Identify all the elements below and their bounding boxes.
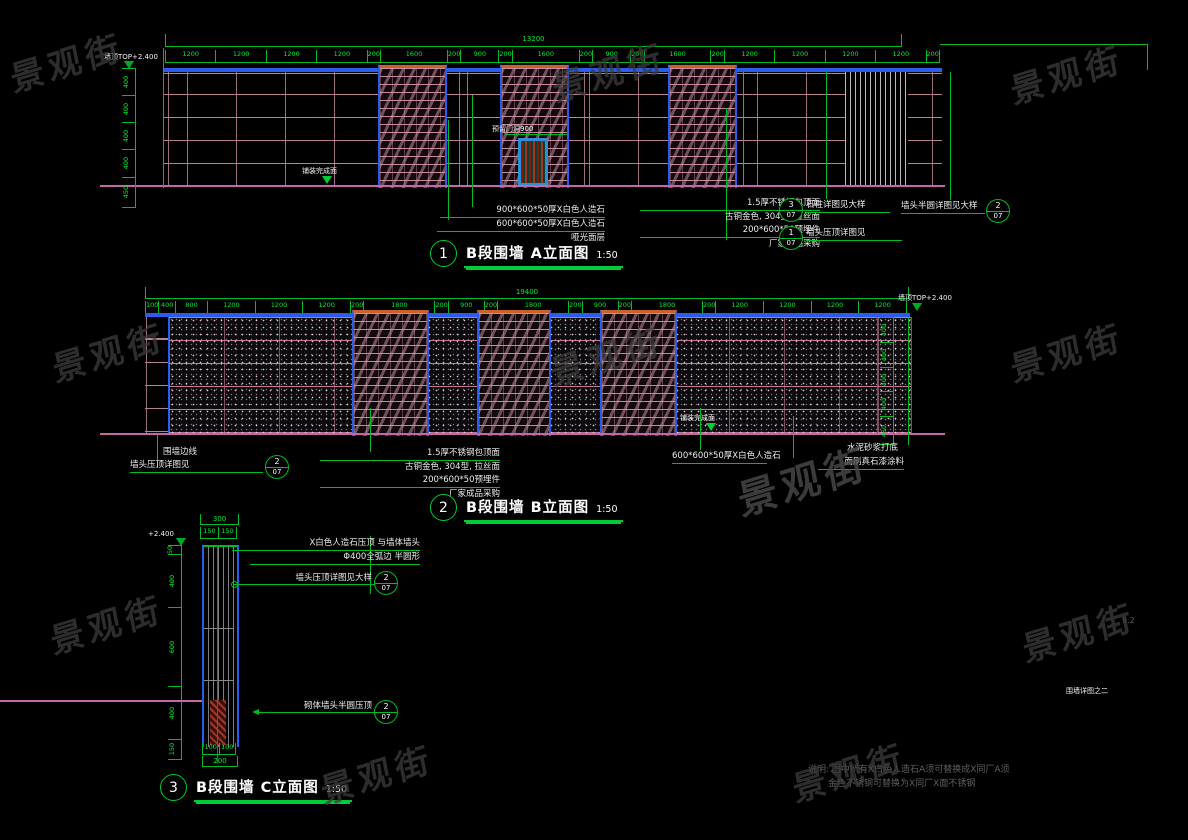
- wall-panel: [565, 72, 668, 185]
- level-marker-icon: [912, 303, 922, 311]
- annotation: 围墙边线: [163, 446, 197, 458]
- dimension-segment: 400: [880, 367, 893, 392]
- dimension-segment: 150: [200, 527, 218, 538]
- dimension-segment: 200: [498, 50, 511, 62]
- dimension-segment: 200: [434, 301, 447, 313]
- dimension-segment: 900: [592, 50, 630, 62]
- leader-line: [826, 72, 827, 199]
- stone-paint-panel: [547, 317, 602, 433]
- dimension-chain-left: 400400400400450: [122, 68, 136, 208]
- ground-line: [100, 433, 945, 435]
- dimension-segment: 450: [122, 177, 135, 208]
- callout-label: 砌体墙头半圆压顶: [270, 700, 372, 712]
- dimension-segment: 100: [145, 301, 158, 313]
- extension-tick: [1147, 44, 1148, 70]
- detail-number: 2: [375, 572, 397, 584]
- dimension-segment: 200: [630, 50, 643, 62]
- annotation: 墙头压顶详图见: [130, 459, 263, 473]
- detail-bubble: 2 07: [374, 700, 398, 724]
- drawing-scale: 1:50: [596, 250, 617, 261]
- dimension-segment: 600: [168, 607, 181, 686]
- dimension-segment: 1200: [763, 301, 811, 313]
- dimension-segment: 200: [367, 50, 380, 62]
- dimension-segment: 200: [447, 50, 460, 62]
- drawing-scale: 1:50: [326, 784, 347, 795]
- dimension-segment: 200: [579, 50, 592, 62]
- detail-number: 3: [780, 199, 802, 211]
- detail-number: 2: [375, 701, 397, 713]
- dimension-total-top: 300: [200, 514, 239, 525]
- drawing-number: 2: [430, 494, 457, 521]
- gate-dim-line: [505, 134, 567, 135]
- drawing-scale: 1:50: [596, 504, 617, 515]
- dimension-segment: 1200: [875, 50, 925, 62]
- annotation: 600*600*50厚X白色人造石: [437, 218, 605, 232]
- finish-surface-label: 铺装完成面: [302, 166, 337, 176]
- end-post: [145, 317, 168, 433]
- dimension-segment: 1200: [255, 301, 303, 313]
- dimension-chain-right: 400400400400450: [880, 317, 894, 445]
- dimension-segment: 200: [702, 301, 715, 313]
- sheet-note: 金色不锈钢可替换为X同厂X面不锈钢: [828, 776, 975, 789]
- dimension-segment: 200: [926, 50, 940, 62]
- dimension-segment: 1600: [380, 50, 447, 62]
- level-label: +2.400: [148, 530, 174, 538]
- leader-dot-icon: [231, 581, 238, 588]
- level-marker-icon: [124, 61, 134, 69]
- annotation: 600*600*50厚X白色人造石: [672, 450, 767, 464]
- drawing-title-text: B段围墙 C立面图: [196, 776, 319, 797]
- brick-pillar: [378, 65, 447, 188]
- dimension-segment: 800: [175, 301, 207, 313]
- finish-surface-marker-icon: [322, 176, 332, 184]
- level-label: 墙顶TOP+2.400: [898, 293, 952, 303]
- dimension-segment: 1200: [774, 50, 824, 62]
- callout-label: 墙头压顶详图见大样: [262, 572, 372, 584]
- detail-sheet: 07: [375, 584, 397, 593]
- dimension-segment: 1200: [207, 301, 255, 313]
- watermark: 景观街: [46, 581, 167, 664]
- dimension-segment: 1200: [811, 301, 859, 313]
- drawing-title-c: 3 B段围墙 C立面图 1:50: [160, 774, 352, 802]
- dimension-segment: 100: [202, 743, 219, 754]
- leader-line: [370, 408, 371, 452]
- metal-grille-panel: [845, 72, 908, 185]
- detail-bubble: 2 07: [374, 571, 398, 595]
- footing-hatch: [210, 700, 226, 745]
- callout-label: 石柱详图见大样: [806, 199, 890, 213]
- finish-surface-label: 铺装完成面: [680, 413, 715, 423]
- dimension-segment: 1200: [724, 50, 774, 62]
- watermark: 景观街: [1018, 589, 1139, 672]
- dimension-segment: 400: [122, 122, 135, 149]
- dimension-segment: 1200: [715, 301, 763, 313]
- dimension-segment: 900: [460, 50, 498, 62]
- dimension-segment: 400: [158, 301, 175, 313]
- drawing-number: 3: [160, 774, 187, 801]
- sheet-label: 围墙详图之二: [1066, 686, 1108, 696]
- page-number: 9.2: [1122, 616, 1135, 625]
- detail-bubble: 2 07: [265, 455, 289, 479]
- dimension-segment: 50: [168, 545, 181, 554]
- leader-line: [472, 95, 473, 207]
- dimension-segment: 1600: [512, 50, 579, 62]
- drawing-number: 1: [430, 240, 457, 267]
- stone-paint-panel: [168, 317, 354, 433]
- gate-label: 预留门洞900: [492, 124, 533, 134]
- gate: [518, 138, 548, 186]
- dimension-segment: 1200: [302, 301, 350, 313]
- detail-bubble: 2 07: [986, 199, 1010, 223]
- annotation: Φ400全弧边 半圆形: [250, 551, 420, 565]
- dimension-segment: 1200: [215, 50, 265, 62]
- course-line: [204, 680, 233, 681]
- dimension-segment: 150: [168, 739, 181, 760]
- brick-pillar: [600, 310, 677, 436]
- overall-dimension: 19400: [145, 287, 909, 299]
- wall-panel: [163, 72, 378, 185]
- centerline: [217, 545, 218, 763]
- dimension-chain-top: 1200120012001200200160020090020016002009…: [165, 50, 940, 63]
- dimension-chain-bottom: 100100: [202, 743, 236, 755]
- dimension-segment: 400: [880, 342, 893, 367]
- dimension-segment: 200: [710, 50, 723, 62]
- detail-sheet: 07: [780, 211, 802, 220]
- dimension-segment: 1200: [165, 50, 215, 62]
- callout-label: 墙头半圆详图见大样: [901, 200, 985, 214]
- detail-number: 2: [266, 456, 288, 468]
- cad-sheet: 景观街 景观街 景观街 景观街 景观街 景观街 景观街 景观街 景观街 景观街 …: [0, 0, 1188, 840]
- stone-paint-panel: [425, 317, 479, 433]
- dimension-segment: 1600: [644, 50, 711, 62]
- dimension-segment: 400: [880, 317, 893, 342]
- detail-sheet: 07: [987, 212, 1009, 221]
- leader-line: [950, 72, 951, 200]
- drawing-title-text: B段围墙 B立面图: [466, 496, 589, 517]
- dimension-segment: 400: [122, 149, 135, 176]
- detail-number: 1: [780, 227, 802, 239]
- dimension-total-bottom: 200: [202, 756, 238, 767]
- dimension-segment: 1200: [825, 50, 875, 62]
- detail-sheet: 07: [375, 713, 397, 722]
- dimension-segment: 400: [168, 686, 181, 739]
- drawing-title-text: B段围墙 A立面图: [466, 242, 589, 263]
- finish-surface-marker-icon: [706, 423, 716, 431]
- wall-panel: [908, 72, 942, 185]
- brick-pillar: [352, 310, 429, 436]
- dimension-segment: 400: [168, 554, 181, 607]
- leader-arrow-icon: [252, 709, 259, 715]
- dimension-segment: 1200: [316, 50, 366, 62]
- dimension-segment: 400: [122, 95, 135, 122]
- detail-bubble: 3 07: [779, 198, 803, 222]
- detail-sheet: 07: [780, 239, 802, 248]
- drawing-title-b: 2 B段围墙 B立面图 1:50: [430, 494, 623, 522]
- annotation: 古铜金色, 304型, 拉丝面: [320, 461, 500, 473]
- annotation: 水泥砂浆打底: [826, 442, 898, 454]
- callout-label: 墙头压顶详图见: [806, 227, 902, 241]
- ground-line: [100, 185, 945, 187]
- dimension-segment: 400: [880, 391, 893, 416]
- leader-line: [258, 712, 374, 713]
- dimension-segment: 450: [880, 416, 893, 445]
- detail-number: 2: [987, 200, 1009, 212]
- course-line: [204, 628, 233, 629]
- dimension-segment: 400: [122, 68, 135, 95]
- extension-line: [163, 48, 164, 188]
- dimension-chain-left: 50400600400150: [168, 545, 182, 760]
- leader-line: [793, 416, 794, 458]
- overall-dimension: 13200: [165, 34, 902, 47]
- extension-line: [940, 44, 1148, 45]
- extension-line: [908, 317, 909, 445]
- annotation: 面刷真石漆涂料: [818, 456, 904, 470]
- dimension-segment: 100: [219, 743, 237, 754]
- drawing-title-a: 1 B段围墙 A立面图 1:50: [430, 240, 623, 268]
- annotation: X白色人造石压顶 与墙体墙头: [232, 537, 420, 551]
- watermark: 景观街: [1006, 309, 1127, 392]
- dimension-segment: 1200: [266, 50, 316, 62]
- ground-line: [0, 700, 202, 702]
- brick-pillar: [477, 310, 551, 436]
- detail-sheet: 07: [266, 468, 288, 477]
- leader-line: [234, 584, 374, 585]
- sheet-note: 说明: 图中所有X白色人造石A须可替换成X同厂A须: [808, 762, 1010, 775]
- annotation: 900*600*50厚X白色人造石: [440, 204, 605, 218]
- detail-bubble: 1 07: [779, 226, 803, 250]
- annotation: 1.5厚不锈钢包顶面: [320, 447, 500, 461]
- leader-line: [700, 408, 701, 450]
- wall-panel: [733, 72, 845, 185]
- annotation: 200*600*50预埋件: [320, 474, 500, 488]
- dimension-segment: 200: [568, 301, 581, 313]
